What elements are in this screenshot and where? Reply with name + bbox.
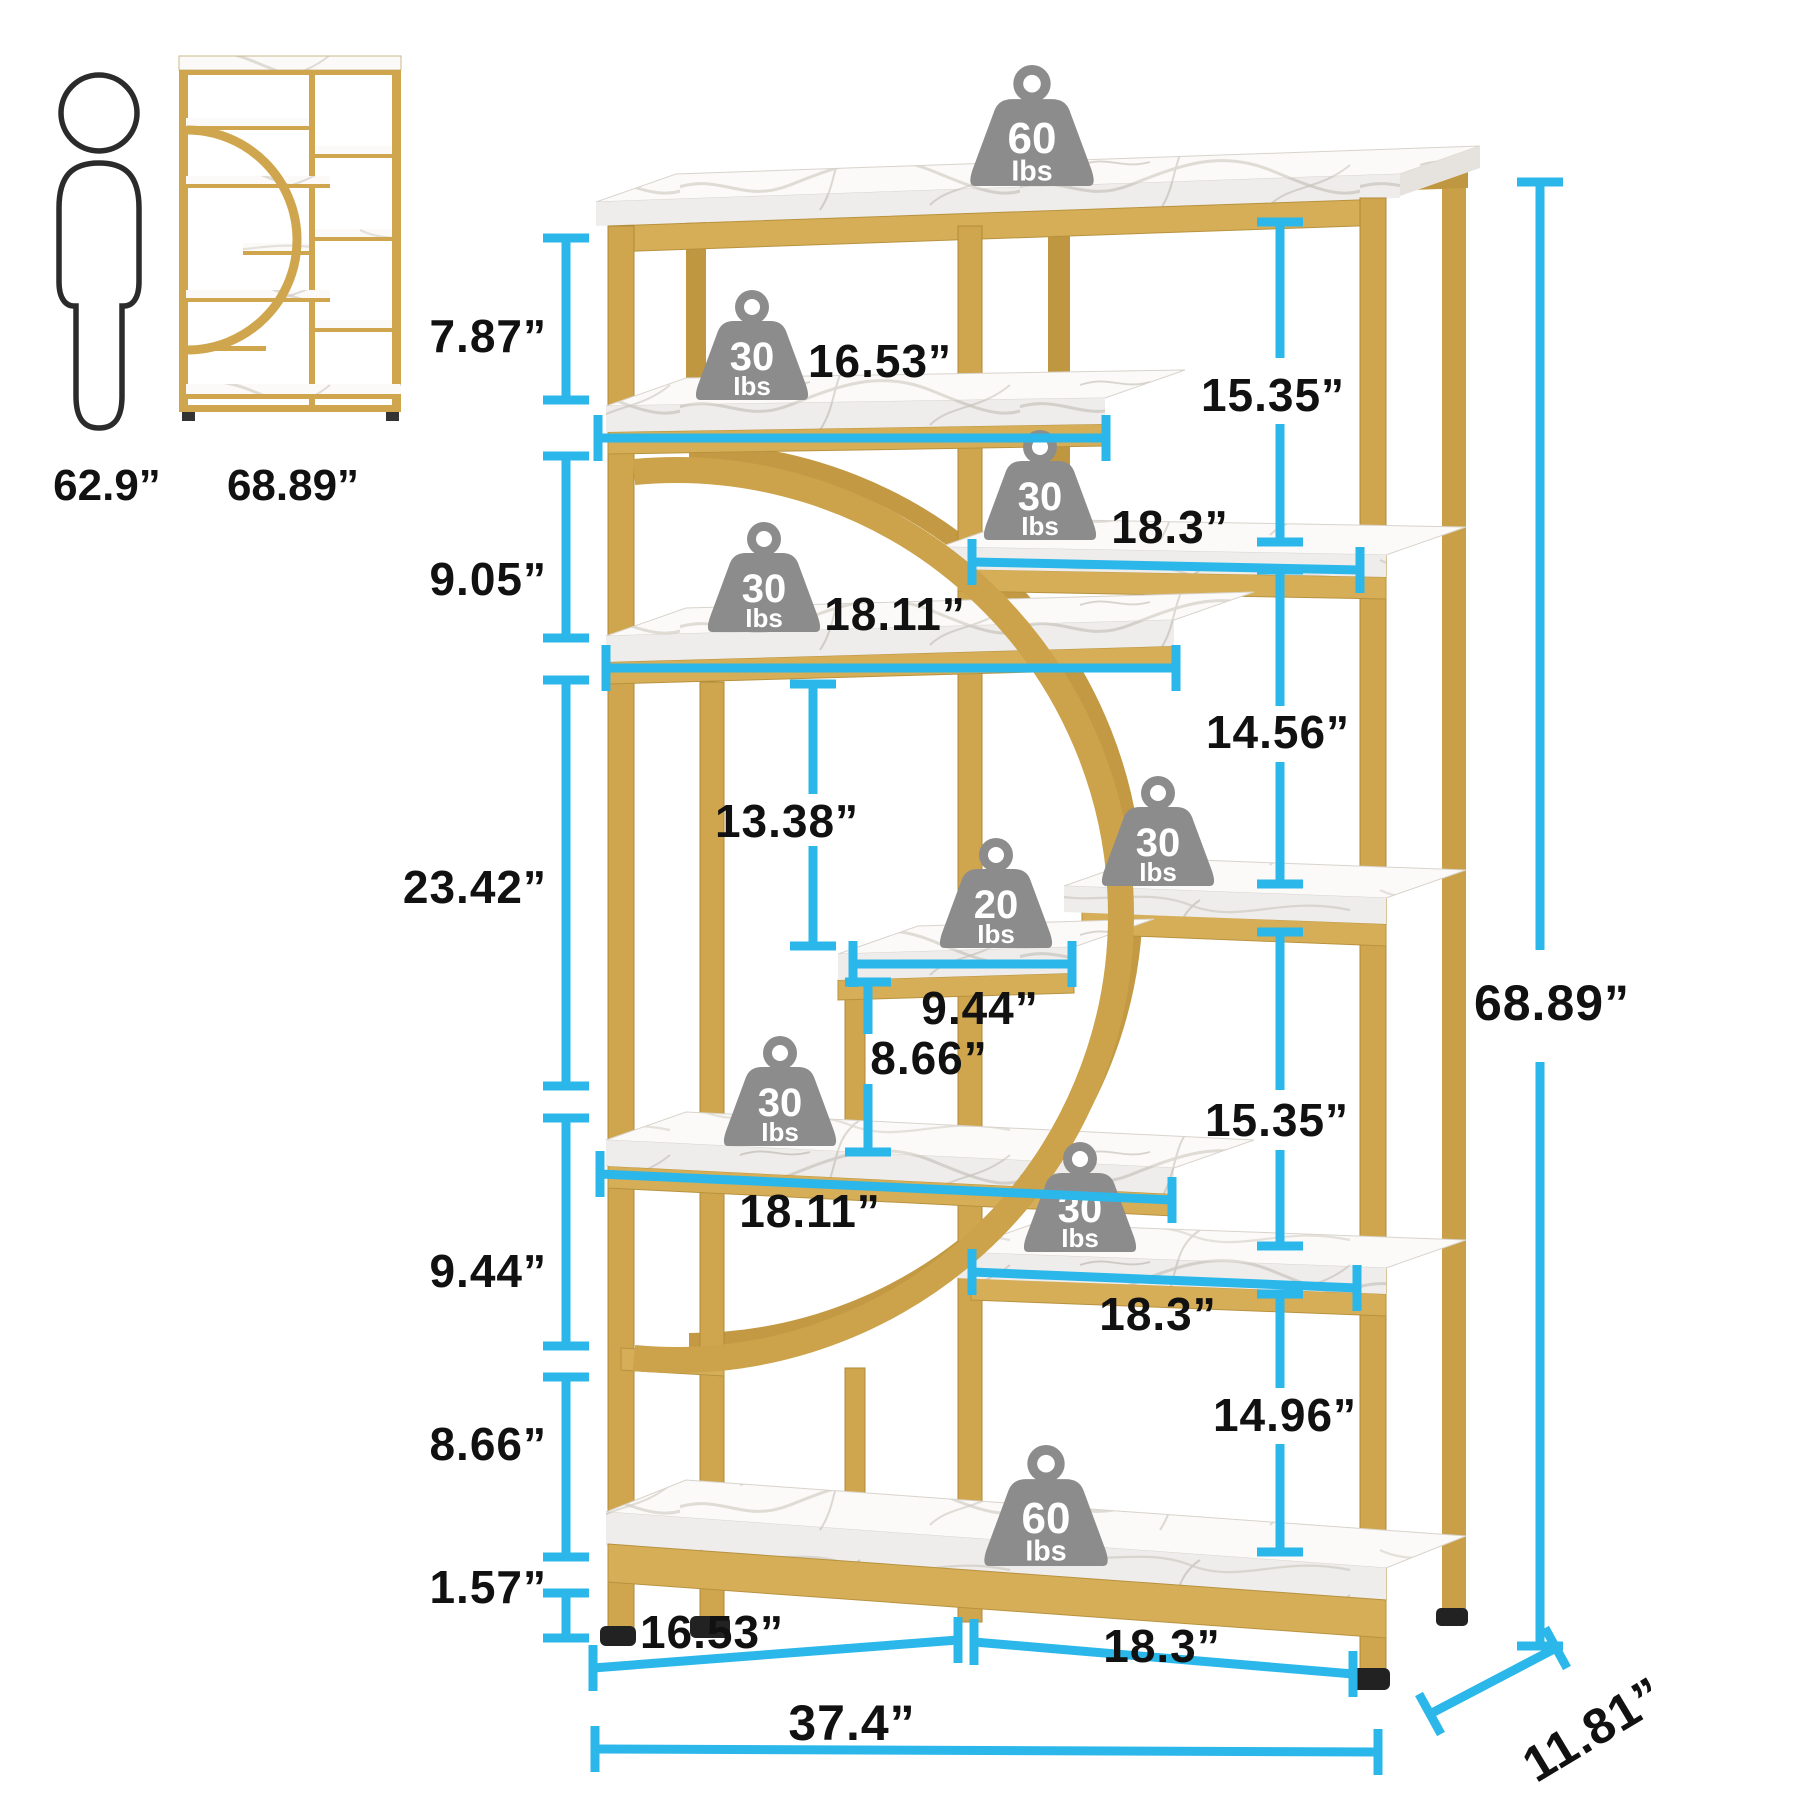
dim-shelf-c-width: 18.11”: [739, 1185, 881, 1237]
svg-text:Ibs: Ibs: [745, 603, 783, 633]
dim-right-shelf-1-width: 18.3”: [1111, 501, 1229, 553]
dim-right-shelf-3-width: 18.3”: [1099, 1288, 1217, 1340]
svg-text:Ibs: Ibs: [1021, 511, 1059, 541]
dim-left-shelf-a-to-b: 9.05”: [429, 553, 547, 605]
scale-person-icon: [59, 75, 139, 428]
dim-bottom-left-width: 16.53”: [640, 1606, 784, 1658]
dim-left-top-to-shelf-a: 7.87”: [429, 310, 547, 362]
dim-middle-to-shelf-c: 8.66”: [870, 1032, 988, 1084]
weight-icon-bottom-shelf: 60 Ibs: [984, 1445, 1107, 1568]
dim-right-shelf-3-to-bottom: 14.96”: [1213, 1389, 1357, 1441]
person-height-label: 62.9”: [53, 461, 161, 510]
dim-overall-depth: 11.81”: [1513, 1666, 1673, 1793]
svg-text:Ibs: Ibs: [761, 1117, 799, 1147]
dim-shelf-b-to-middle: 13.38”: [715, 795, 859, 847]
dim-overall-height: 68.89”: [1474, 975, 1630, 1031]
dim-shelf-a-width: 16.53”: [808, 335, 952, 387]
weight-icon-shelf-b: 30 Ibs: [708, 522, 820, 633]
scale-mini-shelf: [179, 56, 401, 421]
weight-icon-middle-shelf: 20 Ibs: [940, 838, 1052, 949]
dim-left-rail-to-bottom: 8.66”: [429, 1418, 547, 1470]
weight-icon-shelf-c: 30 Ibs: [724, 1036, 836, 1147]
dim-right-shelf-1-to-2: 14.56”: [1206, 706, 1350, 758]
dim-middle-shelf-width: 9.44”: [921, 982, 1039, 1034]
dim-left-foot-height: 1.57”: [429, 1561, 547, 1613]
diagram-canvas: 62.9” 68.89”: [0, 0, 1800, 1800]
svg-text:Ibs: Ibs: [1025, 1536, 1066, 1568]
dim-overall-width: 37.4”: [788, 1695, 915, 1751]
mini-shelf-height-label: 68.89”: [227, 461, 359, 510]
dim-shelf-b-width: 18.11”: [824, 588, 966, 640]
svg-text:Ibs: Ibs: [1061, 1223, 1099, 1253]
weight-icon-shelf-a: 30 Ibs: [696, 290, 808, 401]
svg-text:Ibs: Ibs: [1011, 156, 1052, 188]
weight-icon-top-shelf: 60 Ibs: [970, 65, 1093, 188]
dim-left-shelf-b-to-c: 23.42”: [403, 861, 547, 913]
svg-text:Ibs: Ibs: [733, 371, 771, 401]
dim-right-shelf-2-to-3: 15.35”: [1205, 1094, 1349, 1146]
dim-right-top-to-shelf-1: 15.35”: [1201, 369, 1345, 421]
svg-text:Ibs: Ibs: [1139, 857, 1177, 887]
dim-bottom-right-width: 18.3”: [1103, 1620, 1221, 1672]
svg-text:Ibs: Ibs: [977, 919, 1015, 949]
dim-left-shelf-c-to-rail: 9.44”: [429, 1245, 547, 1297]
product-dimension-diagram: 62.9” 68.89”: [0, 0, 1800, 1800]
